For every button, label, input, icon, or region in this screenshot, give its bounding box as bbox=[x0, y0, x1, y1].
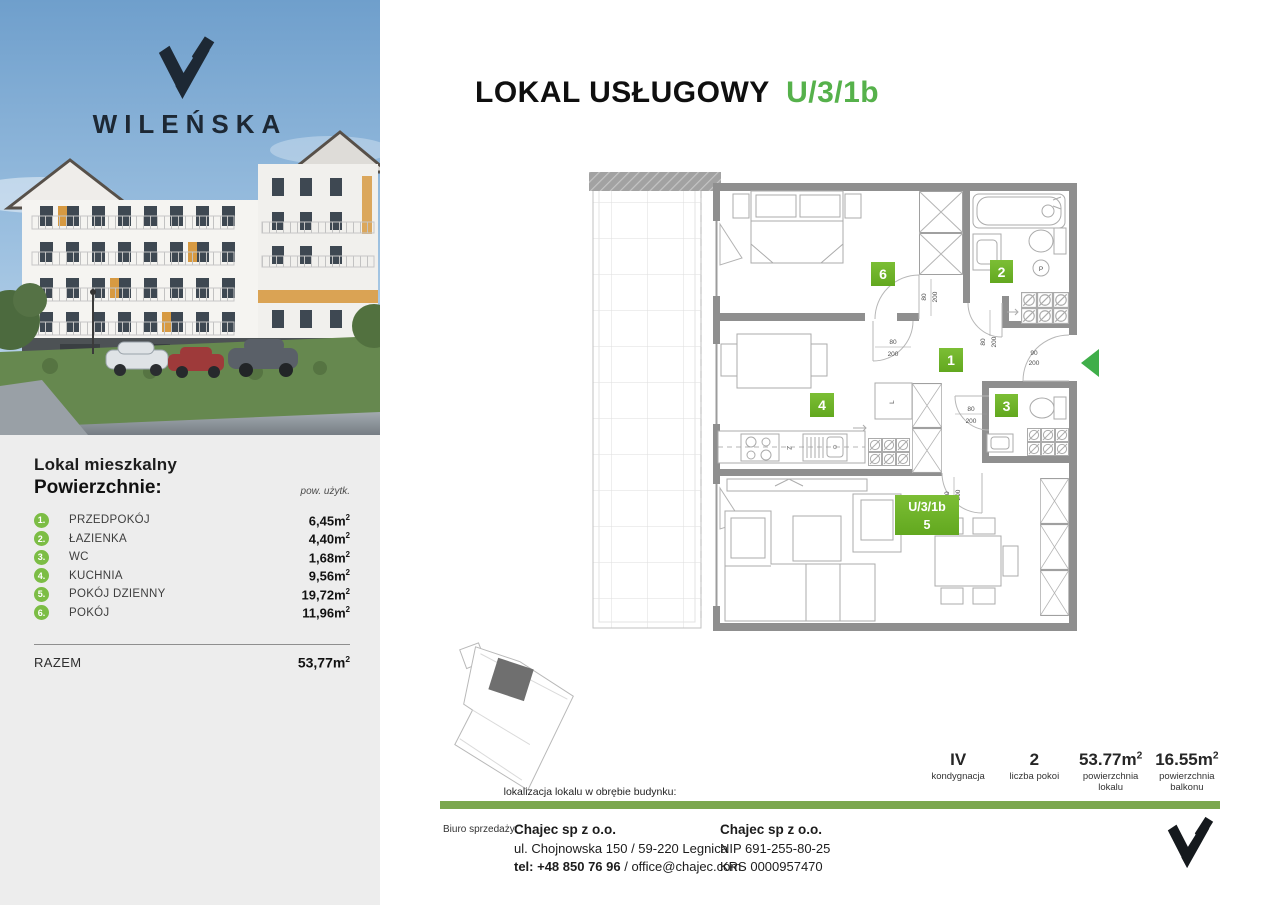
panel-subheading: Powierzchnie: bbox=[34, 477, 162, 499]
entrance-arrow bbox=[1081, 349, 1099, 377]
stat-unit-area: 53.77m2 powierzchnialokalu bbox=[1073, 750, 1149, 794]
room-row-pokoj: 6. POKÓJ 11,96m2 bbox=[34, 604, 350, 623]
room-number-badge: 3. bbox=[34, 550, 49, 565]
company-address: ul. Chojnowska 150 / 59-220 Legnica bbox=[514, 840, 741, 859]
room-number-badge: 4. bbox=[34, 568, 49, 583]
hall-wardrobe bbox=[919, 191, 963, 275]
title-label: LOKAL USŁUGOWY bbox=[475, 76, 769, 109]
room-list: 1. PRZEDPOKÓJ 6,45m2 2. ŁAZIENKA 4,40m2 … bbox=[34, 511, 350, 622]
plan-label-room-4: 4 bbox=[818, 397, 826, 413]
plan-label-room-1: 1 bbox=[947, 352, 955, 368]
wilenska-logo-text: WILEŃSKA bbox=[93, 109, 288, 139]
building-locator bbox=[442, 634, 592, 792]
svg-text:90: 90 bbox=[1030, 350, 1038, 357]
floor-plan: P Z bbox=[575, 166, 1105, 633]
total-row: RAZEM 53,77m2 bbox=[34, 654, 350, 671]
room-number-badge: 1. bbox=[34, 513, 49, 528]
room-area: 1,68m2 bbox=[309, 550, 350, 565]
svg-text:200: 200 bbox=[1029, 360, 1040, 367]
room-row-wc: 3. WC 1,68m2 bbox=[34, 548, 350, 567]
tree-left-2 bbox=[13, 283, 47, 317]
svg-text:80: 80 bbox=[980, 338, 987, 346]
room-area: 9,56m2 bbox=[309, 568, 350, 583]
panel-heading: Lokal mieszkalny bbox=[34, 455, 350, 475]
room-area: 6,45m2 bbox=[309, 513, 350, 528]
total-label: RAZEM bbox=[34, 655, 82, 670]
room-area: 11,96m2 bbox=[302, 605, 350, 620]
bedroom-furniture bbox=[733, 191, 861, 263]
room-row-kuchnia: 4. KUCHNIA 9,56m2 bbox=[34, 567, 350, 586]
room-area: 4,40m2 bbox=[309, 531, 350, 546]
page-title: LOKAL USŁUGOWY U/3/1b bbox=[475, 76, 879, 110]
room-row-przedpokoj: 1. PRZEDPOKÓJ 6,45m2 bbox=[34, 511, 350, 530]
locator-caption: lokalizacja lokalu w obrębie budynku: bbox=[440, 786, 740, 798]
svg-text:80: 80 bbox=[921, 293, 928, 301]
svg-text:200: 200 bbox=[966, 418, 977, 425]
total-area: 53,77m2 bbox=[298, 654, 350, 671]
total-divider bbox=[34, 644, 350, 645]
areas-panel: Lokal mieszkalny Powierzchnie: pow. użyt… bbox=[0, 435, 380, 905]
plan-label-room-5: 5 bbox=[924, 518, 931, 532]
sales-office-contact: Chajec sp z o.o. ul. Chojnowska 150 / 59… bbox=[514, 820, 741, 877]
flyer-page: WILEŃSKA Lokal mieszkalny Powierzchnie: … bbox=[0, 0, 1280, 905]
stat-balcony-area: 16.55m2 powierzchniabalkonu bbox=[1149, 750, 1225, 794]
svg-text:200: 200 bbox=[991, 336, 998, 347]
room-name: PRZEDPOKÓJ bbox=[69, 514, 309, 526]
plan-label-room-6: 6 bbox=[879, 266, 887, 282]
svg-text:80: 80 bbox=[889, 339, 897, 346]
room-number-badge: 2. bbox=[34, 531, 49, 546]
company-nip: NIP 691-255-80-25 bbox=[720, 840, 830, 859]
room-row-pokoj-dzienny: 5. POKÓJ DZIENNY 19,72m2 bbox=[34, 585, 350, 604]
company-phone-line: tel: +48 850 76 96 / office@chajec.com bbox=[514, 858, 741, 877]
stat-floor: IV kondygnacja bbox=[920, 750, 996, 794]
stat-rooms: 2 liczba pokoi bbox=[996, 750, 1072, 794]
room-number-badge: 5. bbox=[34, 587, 49, 602]
svg-text:200: 200 bbox=[932, 291, 939, 302]
svg-text:80: 80 bbox=[967, 406, 975, 413]
unit-stats: IV kondygnacja 2 liczba pokoi 53.77m2 po… bbox=[920, 750, 1225, 794]
room-name: ŁAZIENKA bbox=[69, 533, 309, 545]
footer-divider-bar bbox=[440, 801, 1220, 809]
usable-area-note: pow. użytk. bbox=[301, 486, 350, 499]
company-krs: KRS 0000957470 bbox=[720, 858, 830, 877]
unit-number-text: U/3/1b bbox=[908, 500, 946, 514]
svg-text:200: 200 bbox=[888, 351, 899, 358]
balcony-area bbox=[593, 178, 701, 628]
room-row-lazienka: 2. ŁAZIENKA 4,40m2 bbox=[34, 530, 350, 549]
company-registry-info: Chajec sp z o.o. NIP 691-255-80-25 KRS 0… bbox=[720, 820, 830, 877]
building-photo: WILEŃSKA bbox=[0, 0, 380, 435]
hatched-exterior-wall bbox=[589, 172, 721, 191]
plan-label-room-3: 3 bbox=[1003, 398, 1011, 414]
room-area: 19,72m2 bbox=[302, 587, 350, 602]
svg-text:P: P bbox=[1039, 266, 1043, 273]
company-name: Chajec sp z o.o. bbox=[514, 820, 741, 840]
developer-logo-mark bbox=[1163, 815, 1217, 869]
sales-office-label: Biuro sprzedaży: bbox=[443, 824, 517, 835]
registry-company-name: Chajec sp z o.o. bbox=[720, 820, 830, 840]
svg-text:L: L bbox=[889, 400, 896, 404]
lamp-post bbox=[92, 294, 94, 354]
room-name: POKÓJ bbox=[69, 607, 302, 619]
plan-label-room-2: 2 bbox=[998, 264, 1006, 280]
title-unit-number: U/3/1b bbox=[786, 76, 879, 109]
room-name: WC bbox=[69, 551, 309, 563]
room-name: POKÓJ DZIENNY bbox=[69, 588, 302, 600]
room-number-badge: 6. bbox=[34, 605, 49, 620]
room-name: KUCHNIA bbox=[69, 570, 309, 582]
